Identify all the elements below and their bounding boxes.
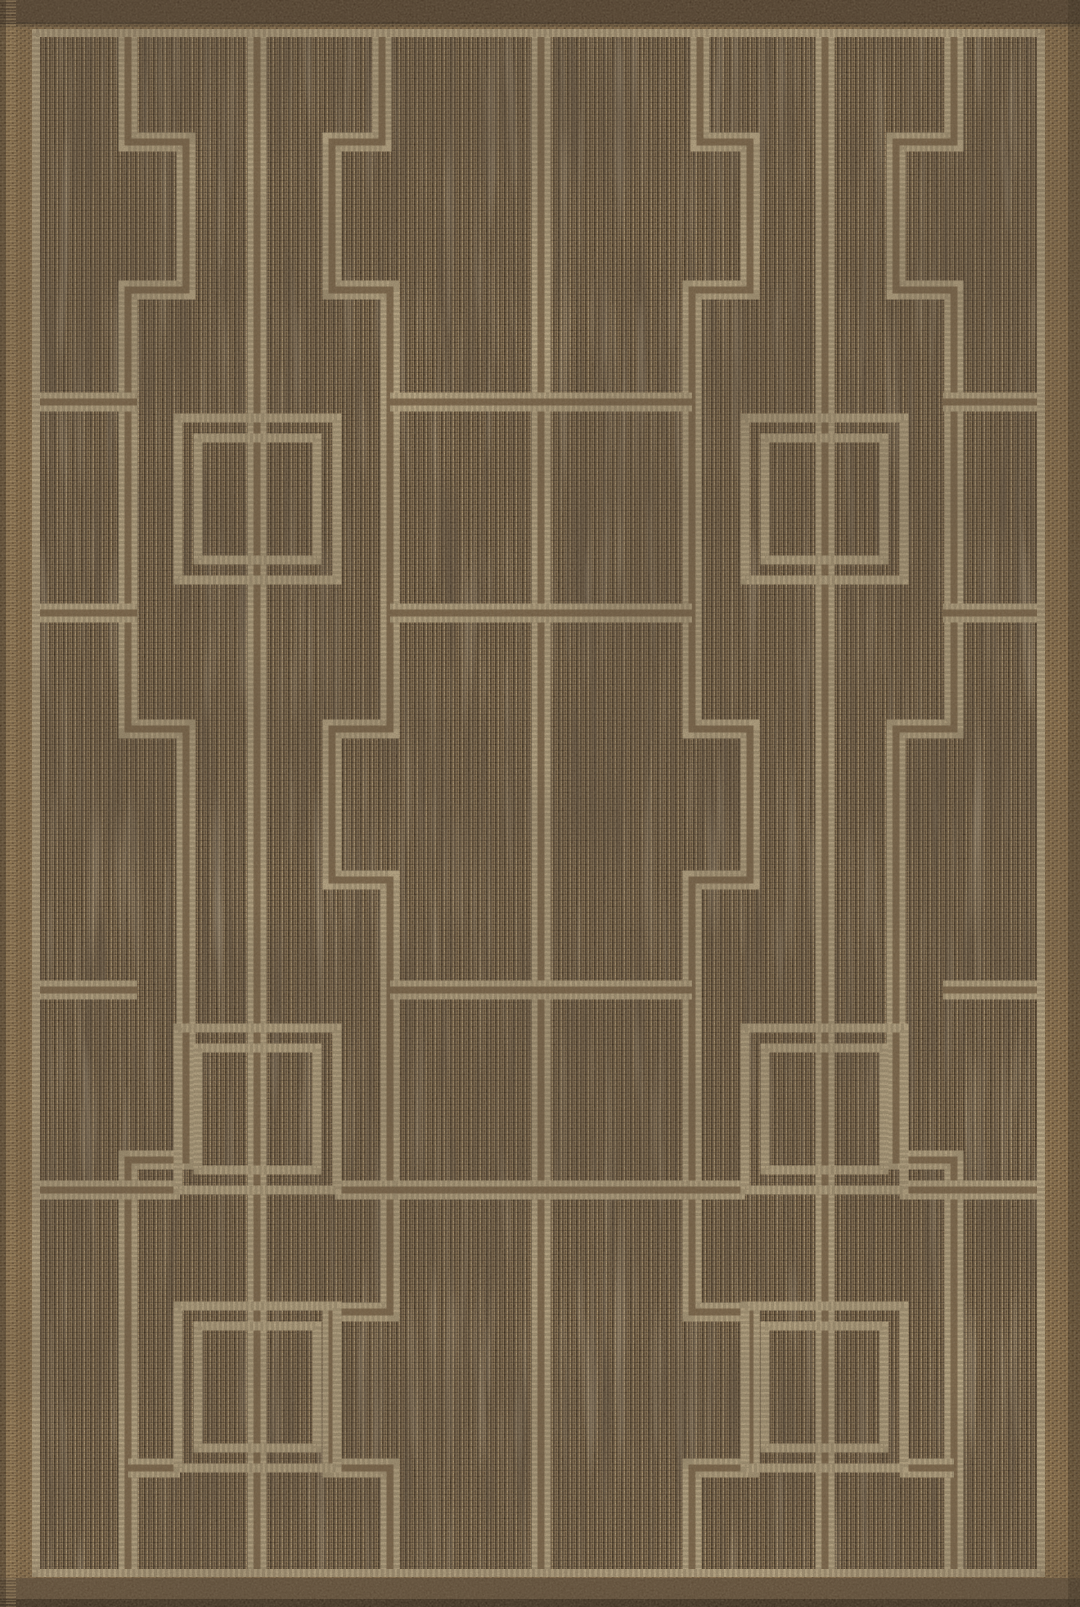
cloud-overlay bbox=[0, 0, 1080, 1607]
rug-image bbox=[0, 0, 1080, 1607]
rug-photo bbox=[0, 0, 1080, 1607]
